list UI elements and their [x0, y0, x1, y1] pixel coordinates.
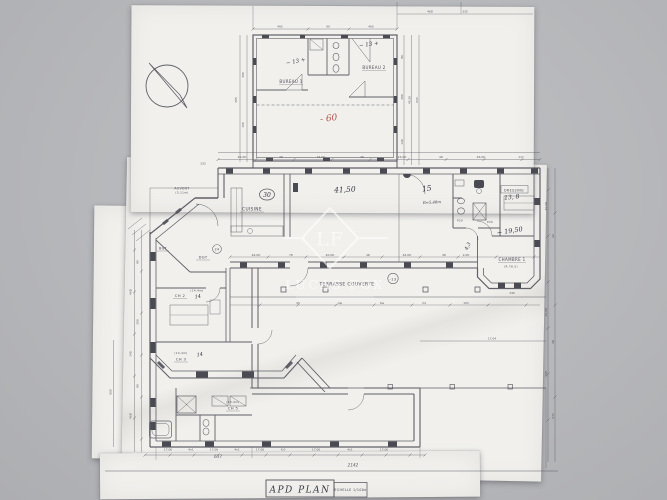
dimension-label: 17,06 — [210, 448, 218, 452]
annotation-ch2-val: 14 — [194, 294, 201, 301]
door-ref-p20: P20 — [487, 220, 493, 224]
room-area-ch5: (13,4m) — [226, 400, 239, 404]
dimension-label: 2142 — [348, 463, 359, 468]
left-wing: 24 AUVENT (5,11m) BGT DGT CH 2 (14,4m) C… — [128, 168, 420, 447]
dimension-label: 4,0 — [281, 448, 286, 452]
north-arrow-icon — [146, 63, 188, 108]
annotation-hall-total: 41,50 — [333, 184, 356, 194]
dimension-label: 643 — [551, 413, 555, 419]
dimension-label: 7D — [289, 253, 294, 257]
dimension-label: 637 — [214, 454, 222, 459]
room-label-chambre1: CHAMBRE 1 — [498, 257, 525, 262]
dimension-label: 333 — [200, 162, 206, 166]
dimension-label: 46D — [427, 10, 434, 14]
dimension-label: 4x1 — [188, 448, 194, 452]
annotation-bureau2-area: ~ 13 + — [359, 41, 380, 50]
dimension-label: 4D — [360, 155, 365, 159]
entry-level-marker: 24 — [215, 248, 220, 252]
dimension-label: 140 — [400, 139, 404, 145]
photographed-floor-plan: BUREAU 1 BUREAU 2 — [0, 0, 667, 500]
room-area-chambre1: (R.78,5) — [504, 265, 518, 269]
dimension-label: 45 — [296, 301, 300, 305]
dimension-label: 6w — [380, 301, 385, 305]
dimension-label: 90 — [136, 384, 140, 388]
room-label-bureau2: BUREAU 2 — [362, 65, 385, 70]
annotation-dressing-val: 13, 8 — [504, 193, 520, 202]
room-label-cuisine: CUISINE — [242, 207, 262, 213]
dimension-label: 4D — [439, 155, 444, 159]
floor-plan-drawing: BUREAU 1 BUREAU 2 — [0, 0, 667, 500]
room-area-ch2: (14,4m) — [190, 289, 203, 293]
watermark: LF LUCAS FOX — [283, 208, 388, 301]
dimension-label: 45,50 — [408, 96, 412, 104]
dimension-label: 4D — [551, 339, 555, 344]
dimension-label: 46D — [129, 412, 133, 419]
kitchen-hall: CUISINE — [231, 174, 399, 262]
annotation-bath-label: 15 — [422, 184, 433, 194]
dimension-label: 90 — [136, 260, 140, 264]
terrace: TERRASSE COUVERTE -13 — [230, 262, 546, 389]
dimension-label: 40,0D — [544, 201, 548, 210]
dimension-label: 24 — [422, 301, 426, 305]
dimension-label: 335 — [462, 10, 468, 14]
dimension-label: 46,0D — [477, 155, 486, 159]
room-label-dressing: DRESSING — [504, 188, 524, 192]
title-block: APD PLAN ECHELLE 1/100e — [266, 480, 367, 497]
dimension-label: 90 — [400, 55, 404, 59]
dimension-label: 4x1 — [234, 448, 240, 452]
annotation-hall-circle: 30 — [263, 192, 271, 199]
dimension-label: 305 — [234, 97, 238, 103]
title-block-name: APD PLAN — [268, 486, 330, 496]
annotation-ch3-val: 14 — [196, 352, 203, 359]
title-block-scale: ECHELLE 1/100e — [334, 488, 366, 492]
dimension-label: 4D — [366, 253, 371, 257]
dimension-label: 300 — [241, 72, 245, 78]
dimension-label: 103 — [463, 301, 469, 305]
annex-block: BUREAU 1 BUREAU 2 — [253, 35, 397, 168]
main-house-top-wall — [218, 168, 540, 174]
watermark-tagline — [296, 296, 374, 301]
annotation-bath-width: B=5,48m — [422, 199, 442, 205]
dimension-label: A0 — [551, 234, 555, 238]
room-label-ch2: CH 2 — [175, 293, 186, 298]
dimension-label: 340 — [509, 291, 515, 295]
dimension-label: 90 — [326, 25, 330, 29]
dimension-label: 17,06 — [312, 448, 320, 452]
room-label-bgt: BGT — [159, 247, 167, 251]
dimension-label: 46,0D — [544, 307, 548, 316]
annotation-red-total: - 60 — [320, 113, 339, 125]
annotation-bureau1-area: ~ 13 + — [286, 57, 307, 67]
dimension-label: 4D — [279, 155, 284, 159]
dimension-label: 30D — [544, 370, 548, 377]
level-marker: -13 — [390, 277, 397, 281]
door-ref-p20: P20 — [457, 219, 463, 223]
dimension-label: 300 — [136, 319, 140, 325]
dimension-label: 2,0D — [463, 253, 471, 257]
room-label-bureau1: BUREAU 1 — [279, 79, 302, 84]
annotation-small-val: 4,3 — [463, 242, 473, 253]
dimension-label: 24,0D — [398, 155, 407, 159]
dimension-label: 17,06 — [164, 448, 172, 452]
dimension-label: 34,0D — [317, 155, 326, 159]
room-area-auvent: (5,11m) — [175, 191, 188, 195]
handwritten-annotations: ~ 13 + ~ 13 + - 60 30 41,50 15 B=5,48m 1… — [194, 41, 523, 359]
dimension-label: 46,0D — [252, 253, 261, 257]
dimension-label: 17,06 — [256, 448, 264, 452]
dimension-label: 46D — [129, 288, 133, 295]
room-area-ch3: (14,4m) — [174, 351, 187, 355]
watermark-brand: LUCAS FOX — [285, 277, 384, 292]
dimension-label: 600 — [109, 389, 113, 395]
dimension-label: 4x1 — [347, 448, 353, 452]
room-label-dgt: DGT — [199, 256, 208, 260]
dimension-label: 4w — [338, 301, 343, 305]
dimension-label: 46,0D — [238, 155, 247, 159]
dimension-label: 46,0D — [403, 253, 412, 257]
dimension-label: 465 — [277, 25, 283, 29]
dimension-label: 117 — [518, 155, 524, 159]
dimension-label: 460 — [368, 25, 374, 29]
dimension-label: 150 — [241, 122, 245, 128]
dimension-label: 4D — [442, 253, 447, 257]
room-label-ch3: CH 3 — [176, 357, 187, 362]
dimension-label: 17,06 — [380, 448, 388, 452]
dimension-label: 300 — [400, 94, 404, 100]
watermark-monogram: LF — [316, 229, 344, 251]
dimension-label: 643 — [415, 97, 419, 103]
room-label-ch5: CH 5 — [228, 406, 239, 411]
dimension-label: 140 — [129, 351, 133, 357]
dimension-label: 40,0D — [326, 253, 335, 257]
dimension-label: 17,04 — [488, 337, 496, 341]
